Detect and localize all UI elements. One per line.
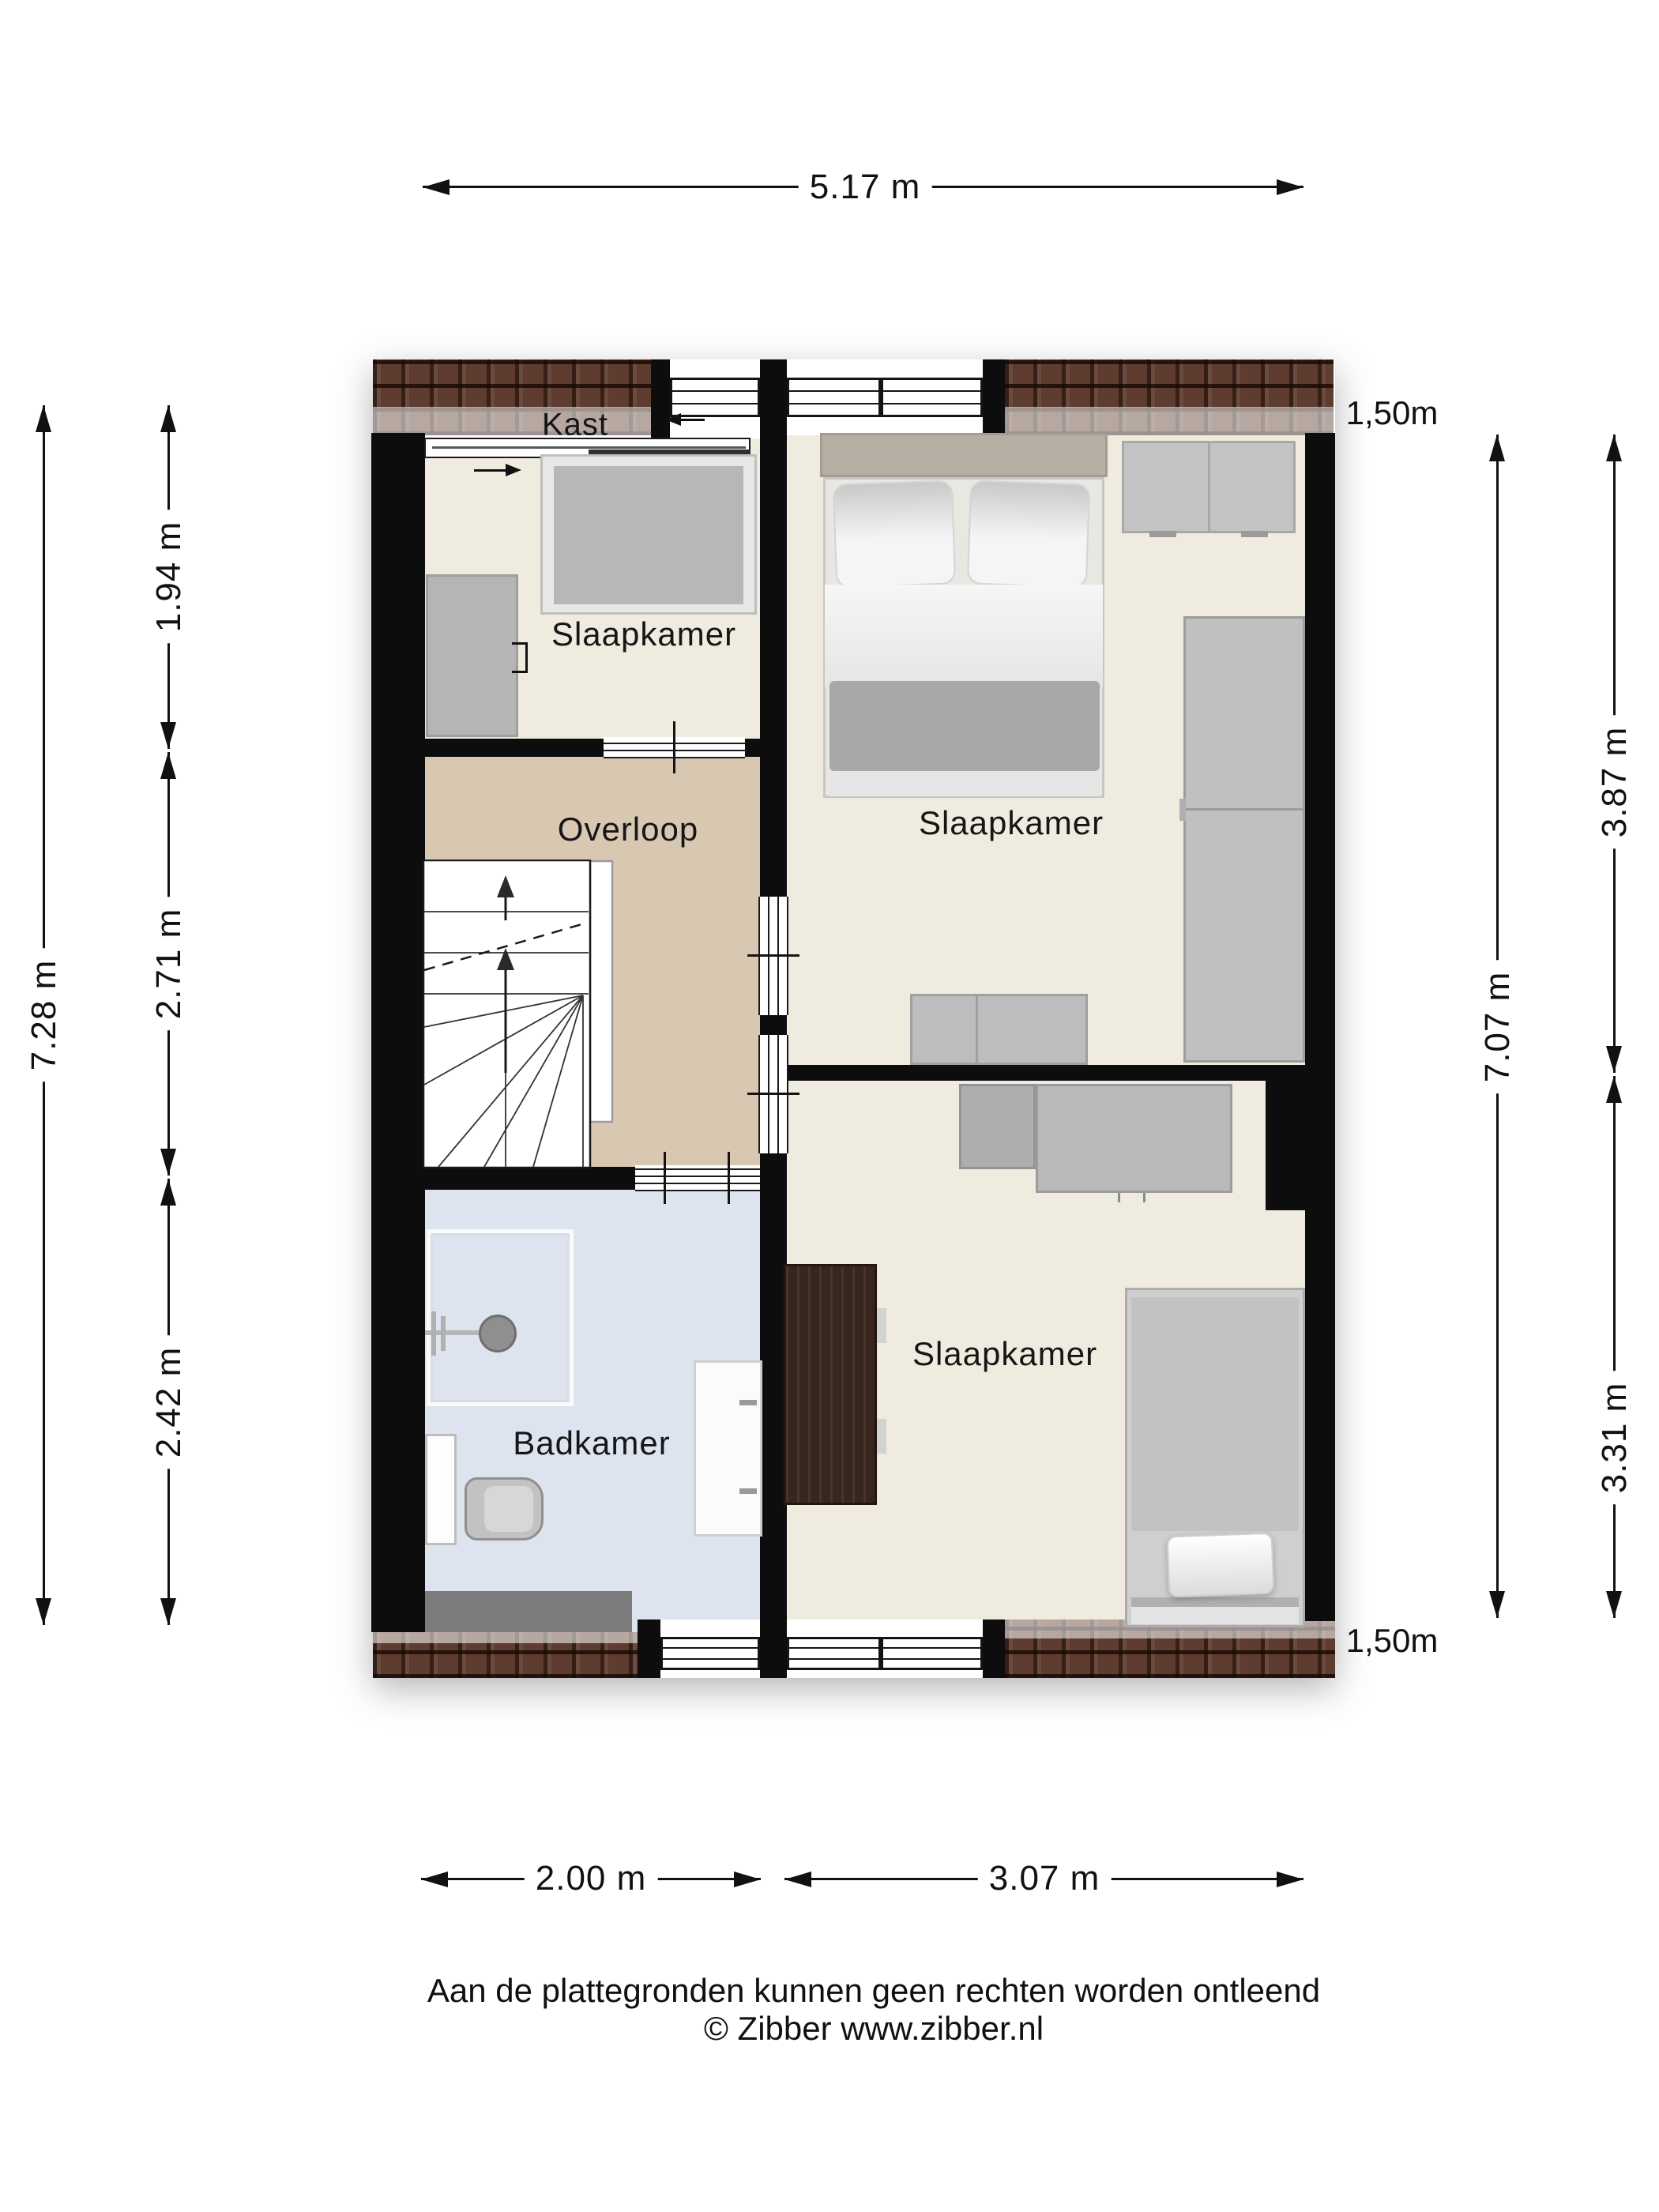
room-label-badkamer: Badkamer [513,1424,670,1462]
roof-tiles-top-right [1005,359,1334,435]
door-tick-slaapkamer-top-right [747,954,799,957]
dim-label-bottom-seg2: 3.07 m [978,1857,1112,1900]
shower-valve-1 [431,1311,436,1356]
roof-tiles-bottom-left [373,1632,638,1678]
dim-line-right-seg2 [1613,1076,1616,1618]
bed-double-pillow-right [967,480,1091,588]
washbasin-cabinet [694,1360,762,1537]
wall-stub-bottom-right-bedroom [1266,1081,1305,1210]
radiator-bathroom [425,1434,457,1545]
disclaimer-text: Aan de plattegronden kunnen geen rechten… [84,1972,1659,2010]
bed-single-left-bedroom [540,454,757,615]
copyright-text: © Zibber www.zibber.nl [84,2010,1659,2048]
toilet [465,1477,544,1540]
dim-arrow-top-left [423,179,450,195]
dim-label-bottom-seg1: 2.00 m [525,1857,658,1900]
wall-pier-bottom-right [983,1619,1005,1678]
staircase [423,860,614,1169]
bed-double-blanket-gray [829,681,1100,771]
dim-arrow-left-total-top [36,405,51,432]
roof-tiles-top-left [373,359,651,435]
window-bottom-bathroom [660,1637,760,1670]
wardrobe-top-right-bedroom [1183,616,1305,1063]
door-tick-slaapkamer-left [673,721,675,773]
chair-symbol-left-bedroom [512,642,528,673]
dim-label-right-seg2: 3.31 m [1593,1371,1636,1505]
desk-bottom-right-bedroom [1036,1084,1232,1193]
desk-leg-mark-2 [1143,1193,1145,1202]
bed-single-bottom-right-band [1131,1597,1299,1607]
roof-tiles-bottom-right [1005,1619,1335,1678]
room-label-slaapkamer-top-right: Slaapkamer [919,804,1104,842]
wall-pier-bottom-left [638,1619,660,1678]
knee-wall-label-bottom: 1,50m [1346,1622,1439,1660]
dim-label-left-seg1: 1.94 m [148,510,190,644]
window-bottom-bedroom [787,1637,983,1670]
dim-label-right-total: 7.07 m [1477,961,1519,1094]
wall-pier-top-left [651,359,670,438]
dim-arrow-top-right [1277,179,1303,195]
stair-balustrade [590,861,612,1122]
wall-cabinet-top-right-bedroom [1122,441,1296,533]
shower-valve-2 [441,1316,446,1351]
dim-label-right-seg1: 3.87 m [1593,716,1636,849]
desk-left-bedroom [426,574,518,737]
dim-label-left-total: 7.28 m [23,949,66,1082]
dim-label-left-seg3: 2.42 m [148,1336,190,1469]
window-top-small [670,378,760,417]
floorplan-canvas: Kast Slaapkamer Slaapkamer Overloop Badk… [0,0,1659,2212]
bed-single-bottom-right-pillow [1167,1533,1275,1598]
wall-between-right-bedrooms [787,1065,1305,1081]
door-tick-badkamer-2 [728,1152,730,1204]
wall-pier-top-right [983,359,1005,438]
faucet-1 [739,1400,757,1405]
door-badkamer [635,1165,760,1191]
bath-mat [425,1591,632,1632]
faucet-2 [739,1488,757,1494]
dim-label-top-width: 5.17 m [799,166,932,209]
bed-double-headboard [820,433,1108,477]
door-tick-badkamer-1 [664,1152,666,1204]
wardrobe-dark-bottom-right-bedroom [784,1264,877,1505]
door-tick-slaapkamer-bottom-right [747,1093,799,1095]
room-label-overloop: Overloop [558,811,698,848]
dim-arrow-left-total-bottom [36,1598,51,1625]
dim-label-left-seg2: 2.71 m [148,897,190,1031]
knee-wall-label-top: 1,50m [1346,394,1439,432]
shower-head [479,1315,517,1352]
bed-double-foot-fold [829,771,1100,796]
chair-bottom-right-bedroom [959,1084,1036,1169]
room-label-slaapkamer-left: Slaapkamer [551,615,736,653]
bed-single-bottom-right-footboard [1131,1607,1299,1624]
wall-right-exterior [1305,433,1335,1621]
window-top-wide [787,378,983,417]
room-label-slaapkamer-bottom-right: Slaapkamer [912,1335,1097,1373]
wardrobe-dark-handle-2 [877,1419,886,1454]
wardrobe-dark-handle-1 [877,1308,886,1343]
desk-leg-mark-1 [1118,1193,1120,1202]
room-label-kast: Kast [542,408,608,443]
chest-of-drawers-top-right-bedroom [910,994,1088,1065]
wall-left-exterior [371,433,425,1632]
bed-single-bottom-right-duvet [1131,1297,1299,1531]
wall-main-vertical [760,359,787,1678]
bed-double-pillow-left [833,480,957,588]
